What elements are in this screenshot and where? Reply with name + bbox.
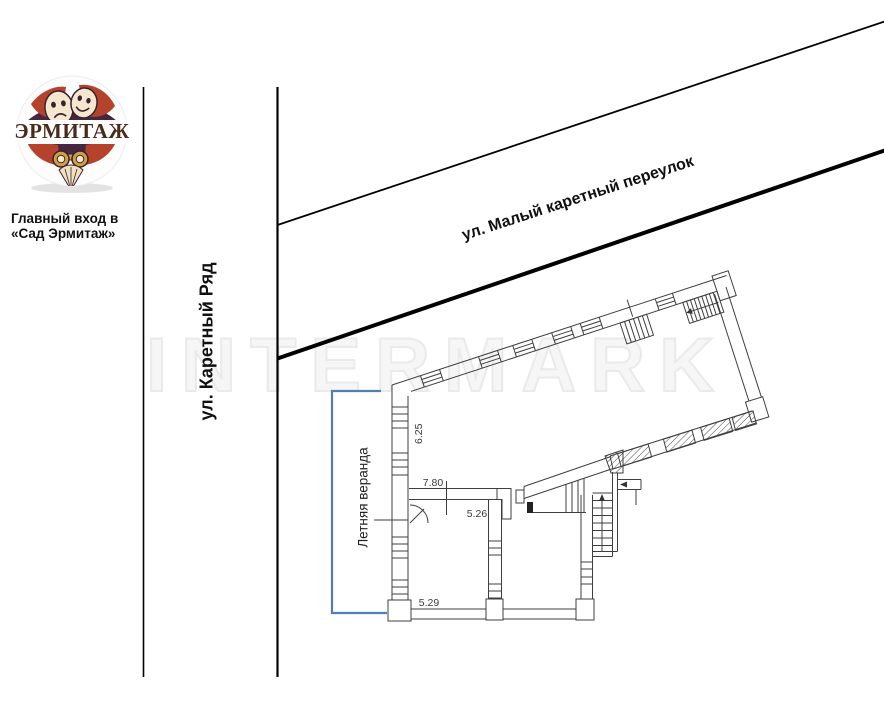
floor-plan: 6.25 7.80 5.26 5.29 [0,0,884,723]
entrance-mark [527,502,533,513]
hermitage-logo-icon: ЭРМИТАЖ [13,72,131,196]
caption-line-1: Главный вход в [11,211,151,226]
stair-top-right [683,291,724,323]
logo-title: ЭРМИТАЖ [14,119,129,143]
site-plan-page: INTERMARK [0,0,884,723]
veranda-label: Летняя веранда [356,442,371,554]
dim-5-29: 5.29 [419,597,440,609]
hatched-facade-wall [605,411,757,473]
interior-wall-vertical [489,500,502,599]
left-facade-wall [374,385,411,621]
landing-arrow [620,482,627,488]
stair-up-arrow [599,494,605,501]
top-facade-wall [390,267,740,417]
pilaster [497,489,511,520]
left-wall-windows [392,407,408,601]
dim-6-25: 6.25 [413,423,425,444]
caption-line-2: «Сад Эрмитаж» [11,226,151,241]
street-label-karetny-ryad: ул. Каретный Ряд [197,242,218,442]
corner-block-bottomleft [388,600,411,621]
central-staircase [581,472,618,599]
dim-7-80: 7.80 [423,477,444,489]
door-swing [410,505,428,523]
hatched-connector [605,450,623,473]
logo-caption: Главный вход в «Сад Эрмитаж» [11,211,151,241]
dimension-labels: 6.25 7.80 5.26 5.29 [413,423,487,609]
entry-stair-top-middle [614,295,654,344]
dim-5-26: 5.26 [467,508,488,520]
